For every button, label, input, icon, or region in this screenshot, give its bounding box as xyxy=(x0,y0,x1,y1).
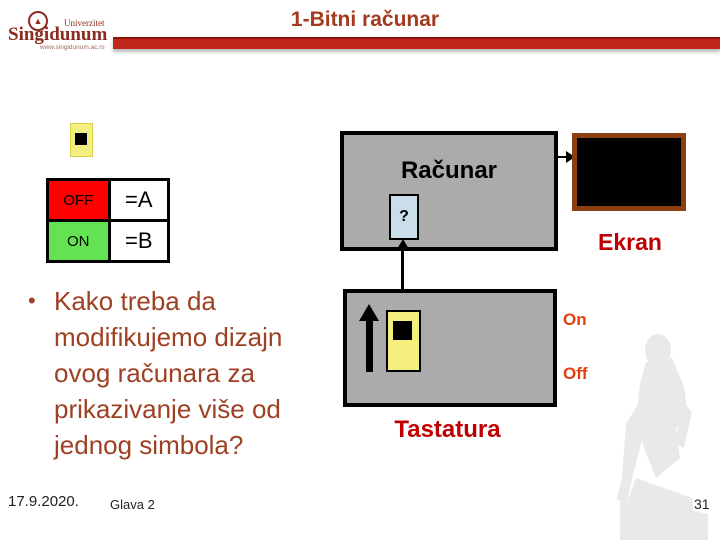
table-row: OFF =A xyxy=(48,180,169,221)
footer-date: 17.9.2020. xyxy=(8,493,79,510)
university-logo: ▲ Singidunum Univerzitet www.singidunum.… xyxy=(8,10,118,54)
keyboard-label: Tastatura xyxy=(360,416,535,444)
state-mapping-table: OFF =A ON =B xyxy=(46,178,170,263)
bullet-icon: • xyxy=(28,283,54,463)
on-value-cell: =B xyxy=(109,221,169,262)
unknown-component-box: ? xyxy=(389,194,419,240)
keyboard-switch-key-icon xyxy=(386,310,421,372)
on-state-cell: ON xyxy=(48,221,110,262)
screen-label: Ekran xyxy=(580,229,680,256)
screen-display xyxy=(572,133,686,211)
keyboard-on-label: On xyxy=(563,310,587,330)
footer-chapter: Glava 2 xyxy=(110,497,155,512)
page-title: 1-Bitni računar xyxy=(250,8,480,32)
table-row: ON =B xyxy=(48,221,169,262)
computer-label: Računar xyxy=(344,157,554,185)
bullet-text: Kako treba da modifikujemo dizajn ovog r… xyxy=(54,283,336,463)
bullet-list: • Kako treba da modifikujemo dizajn ovog… xyxy=(28,283,336,463)
slide: ▲ Singidunum Univerzitet www.singidunum.… xyxy=(0,0,720,540)
logo-url: www.singidunum.ac.rs xyxy=(40,44,105,51)
off-value-cell: =A xyxy=(109,180,169,221)
toggle-direction-arrow xyxy=(366,320,373,372)
switch-key-icon xyxy=(70,123,93,157)
logo-university-label: Univerzitet xyxy=(64,18,104,28)
keyboard-switch-knob xyxy=(393,321,412,340)
off-state-cell: OFF xyxy=(48,180,110,221)
toggle-direction-arrowhead-icon xyxy=(359,304,379,321)
keyboard-off-label: Off xyxy=(563,364,588,384)
header-divider-bar xyxy=(113,37,720,49)
page-number: 31 xyxy=(694,496,710,512)
connector-to-computer-arrowhead-icon xyxy=(397,239,409,249)
switch-key-knob xyxy=(75,133,87,145)
list-item: • Kako treba da modifikujemo dizajn ovog… xyxy=(28,283,336,463)
computer-box: Računar ? xyxy=(340,131,558,251)
